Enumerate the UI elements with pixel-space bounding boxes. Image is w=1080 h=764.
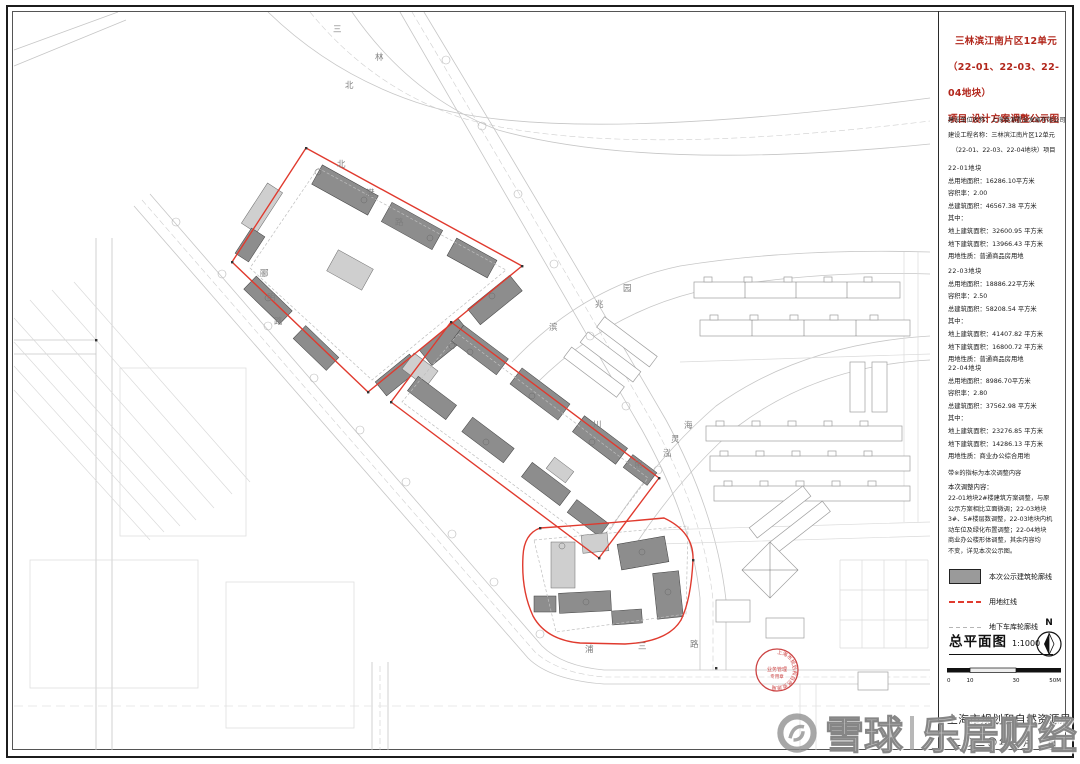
street-label: 北 bbox=[345, 81, 354, 91]
street-label: 路 bbox=[690, 639, 699, 650]
indicator-row: 容积率：2.00 bbox=[948, 188, 1068, 201]
legend-label: 本次公示建筑轮廓线 bbox=[989, 572, 1052, 582]
legend-item-redline: 用地红线 bbox=[949, 597, 1017, 607]
parcel-name: 22-04地块 bbox=[948, 363, 1068, 376]
indicator-row: 总建筑面积：58208.54 平方米 bbox=[948, 304, 1068, 317]
street-label: 海 bbox=[684, 420, 693, 431]
legend-item-building: 本次公示建筑轮廓线 bbox=[949, 569, 1052, 584]
adjustment-note-title: 本次调整内容： bbox=[948, 482, 993, 491]
indicator-row: 用地性质：普通商品房用地 bbox=[948, 251, 1068, 264]
street-label: 浦 bbox=[585, 644, 594, 655]
street-label: 南 bbox=[634, 459, 643, 470]
scale-tick-0: 0 bbox=[947, 678, 951, 684]
indicator-row: 其中： bbox=[948, 213, 1068, 226]
info-panel: 三林滨江南片区12单元 （22-01、22-03、22-04地块） 项目 设计方… bbox=[939, 11, 1070, 749]
site-plan-map: 三 林 北 北 港 路 郦 明 路 滨 兆 园 川 南 泓 灵 海 浦 三 路 … bbox=[13, 12, 938, 752]
street-label: 滨 bbox=[549, 322, 558, 333]
title-line-2: （22-01、22-03、22-04地块） bbox=[948, 55, 1066, 107]
scale-tick-30: 30 bbox=[1013, 678, 1020, 684]
parcel-22-01-indicators: 22-01地块 总用地面积：16286.10平方米 容积率：2.00 总建筑面积… bbox=[948, 163, 1068, 264]
street-label: 川 bbox=[593, 420, 602, 430]
indicator-row: 总建筑面积：46567.38 平方米 bbox=[948, 201, 1068, 214]
street-label: 明 bbox=[267, 293, 276, 303]
indicator-row: 总建筑面积：37562.98 平方米 bbox=[948, 401, 1068, 414]
existing-buildings bbox=[564, 277, 910, 690]
indicator-row: 其中： bbox=[948, 413, 1068, 426]
note-line: 不变，详见本次公示图。 bbox=[948, 547, 1068, 558]
indicator-row: 地下建筑面积：14286.13 平方米 bbox=[948, 439, 1068, 452]
indicator-row: 容积率：2.50 bbox=[948, 291, 1068, 304]
watermark-brand-2: 乐居财经 bbox=[921, 705, 1077, 761]
title-line-1: 三林滨江南片区12单元 bbox=[948, 29, 1066, 55]
indicator-row: 地上建筑面积：23276.85 平方米 bbox=[948, 426, 1068, 439]
scale-bar: 0 10 30 50M bbox=[947, 664, 1067, 686]
street-label: 北 bbox=[337, 160, 346, 170]
street-label: 林 bbox=[375, 52, 384, 63]
indicator-row: 总用地面积：18886.22平方米 bbox=[948, 279, 1068, 292]
legend-label: 用地红线 bbox=[989, 597, 1017, 607]
parcel-name: 22-03地块 bbox=[948, 266, 1068, 279]
seal-center-text: 业务管理 bbox=[767, 666, 787, 673]
parcel-22-04-indicators: 22-04地块 总用地面积：8986.70平方米 容积率：2.80 总建筑面积：… bbox=[948, 363, 1068, 464]
legend-building-swatch bbox=[949, 569, 981, 584]
indicator-row: 容积率：2.80 bbox=[948, 388, 1068, 401]
note-line: 3#、5#楼层数调整，22-03地块内机 bbox=[948, 515, 1068, 526]
legend-redline-swatch bbox=[949, 601, 981, 603]
indicator-row: 地下建筑面积：13966.43 平方米 bbox=[948, 239, 1068, 252]
street-label: 三 bbox=[638, 642, 647, 652]
meta-owner: 建设单位名称：上海临浦置业发展有限公司 bbox=[948, 113, 1068, 128]
adjustment-flag-note: 带※的指标为本次调整内容 bbox=[948, 468, 1068, 477]
xueqiu-logo-icon bbox=[776, 712, 818, 754]
indicator-row: 地上建筑面积：41407.82 平方米 bbox=[948, 329, 1068, 342]
note-line: 公示方案相比立面微调；22-03地块 bbox=[948, 505, 1068, 516]
street-label: 泓 bbox=[663, 449, 672, 459]
street-label: 路 bbox=[274, 316, 283, 327]
plan-title-label: 总平面图 bbox=[949, 634, 1007, 650]
watermark-divider bbox=[910, 716, 914, 750]
watermark: 雪球 乐居财经 bbox=[776, 706, 1077, 760]
street-label: 路 bbox=[395, 217, 404, 228]
project-meta: 建设单位名称：上海临浦置业发展有限公司 建设工程名称：三林滨江南片区12单元 （… bbox=[948, 113, 1068, 158]
parcel-name: 22-01地块 bbox=[948, 163, 1068, 176]
note-line: 动车位及绿化布置调整；22-04地块 bbox=[948, 526, 1068, 537]
adjustment-note-body: 22-01地块2#楼建筑方案调整，与原 公示方案相比立面微调；22-03地块 3… bbox=[948, 494, 1068, 558]
street-label: 三 bbox=[333, 25, 342, 35]
scale-tick-50: 50M bbox=[1049, 678, 1061, 684]
legend-garage-swatch bbox=[949, 627, 981, 628]
road-network bbox=[14, 12, 930, 750]
indicator-row: 总用地面积：16286.10平方米 bbox=[948, 176, 1068, 189]
indicator-row: 总用地面积：8986.70平方米 bbox=[948, 376, 1068, 389]
street-label: 郦 bbox=[260, 269, 269, 279]
north-label: N bbox=[1045, 618, 1053, 628]
indicator-row: 其中： bbox=[948, 316, 1068, 329]
scale-tick-10: 10 bbox=[967, 678, 974, 684]
street-label: 灵 bbox=[671, 435, 680, 445]
indicator-row: 地上建筑面积：32600.95 平方米 bbox=[948, 226, 1068, 239]
street-label: 兆 bbox=[595, 299, 604, 310]
street-label: 港 bbox=[366, 188, 375, 199]
note-line: 商业办公楼形体调整，其余内容均 bbox=[948, 536, 1068, 547]
plan-sheet: 三 林 北 北 港 路 郦 明 路 滨 兆 园 川 南 泓 灵 海 浦 三 路 … bbox=[0, 0, 1080, 764]
meta-project-2: （22-01、22-03、22-04地块）项目 bbox=[948, 143, 1068, 158]
meta-project: 建设工程名称：三林滨江南片区12单元 bbox=[948, 128, 1068, 143]
watermark-brand-1: 雪球 bbox=[825, 705, 903, 761]
indicator-row: 地下建筑面积：16800.72 平方米 bbox=[948, 342, 1068, 355]
indicator-row: 用地性质：商业办公综合用地 bbox=[948, 451, 1068, 464]
street-label: 园 bbox=[623, 284, 632, 294]
parcel-22-03-indicators: 22-03地块 总用地面积：18886.22平方米 容积率：2.50 总建筑面积… bbox=[948, 266, 1068, 367]
note-line: 22-01地块2#楼建筑方案调整，与原 bbox=[948, 494, 1068, 505]
seal-sub-text: 专用章 bbox=[770, 673, 784, 680]
north-arrow: N bbox=[1027, 614, 1071, 662]
